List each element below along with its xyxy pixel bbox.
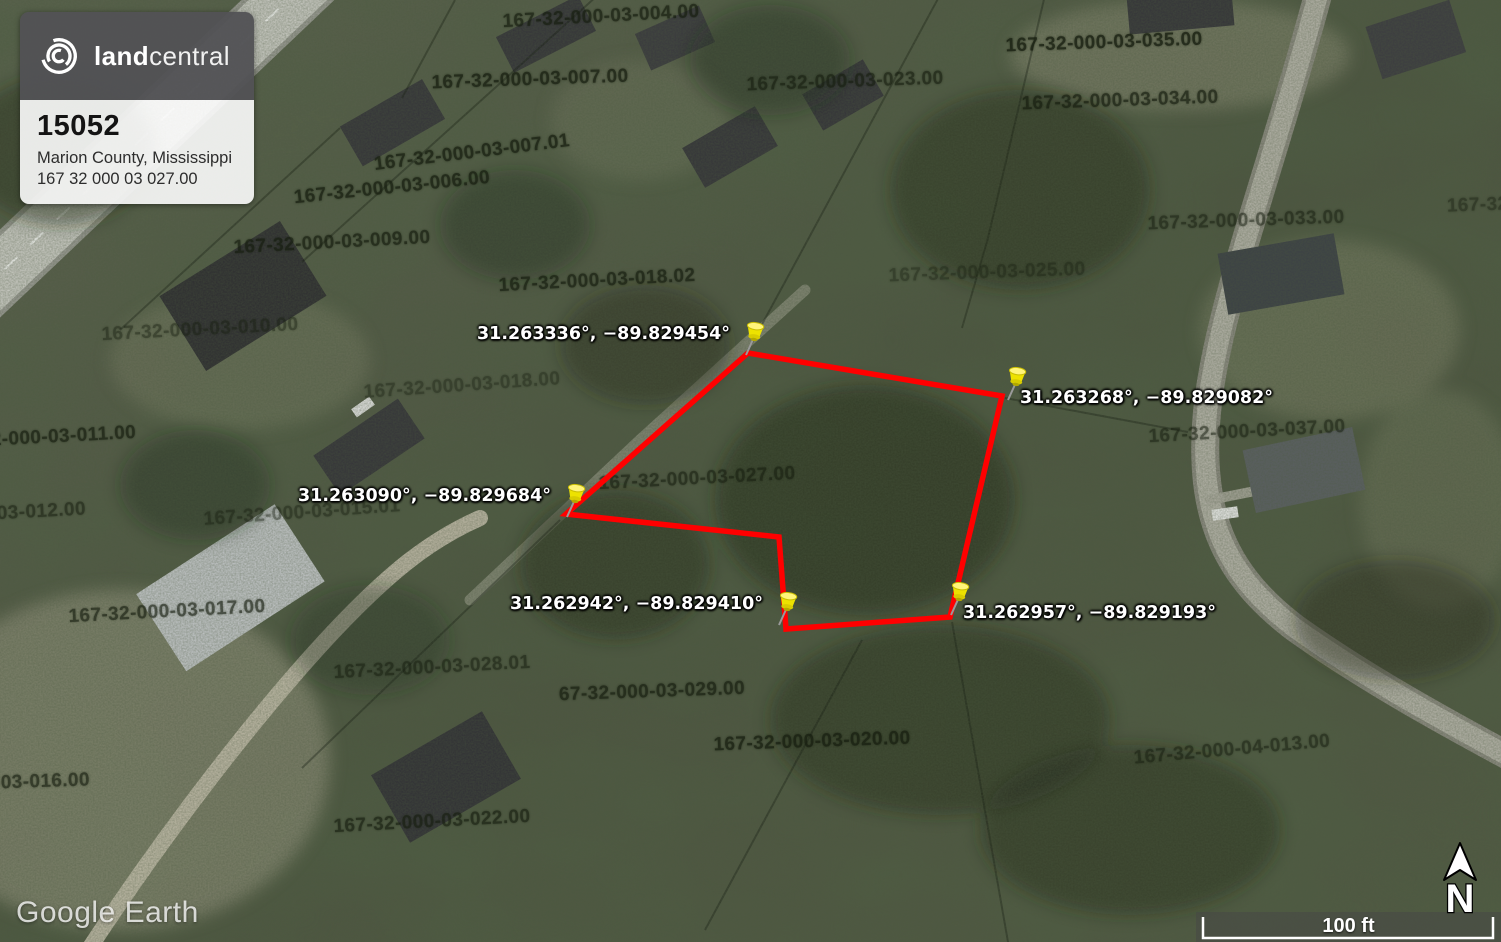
brand-wordmark: landcentral xyxy=(94,41,230,72)
north-indicator: N xyxy=(1434,840,1486,918)
google-earth-watermark: Google Earth xyxy=(16,896,199,930)
north-label: N xyxy=(1446,877,1475,918)
brand-body: 15052 Marion County, Mississippi 167 32 … xyxy=(20,100,254,204)
listing-parcel-number: 167 32 000 03 027.00 xyxy=(37,169,237,190)
pushpin-icon xyxy=(771,590,803,629)
brand-word-land: land xyxy=(94,41,149,71)
brand-header: landcentral xyxy=(20,12,254,100)
map-canvas[interactable]: 167-32-000-03-004.00 167-32-000-03-007.0… xyxy=(0,0,1501,942)
landcentral-logo-icon xyxy=(36,33,82,79)
pin-coordinates-label: 31.263268°, −89.829082° xyxy=(1020,388,1273,408)
brand-word-central: central xyxy=(149,41,230,71)
north-arrow-icon xyxy=(1444,843,1476,880)
pushpin-icon xyxy=(738,320,770,359)
listing-info-card: landcentral 15052 Marion County, Mississ… xyxy=(20,12,254,204)
pin-coordinates-label: 31.263336°, −89.829454° xyxy=(477,324,730,344)
pin-coordinates-label: 31.262957°, −89.829193° xyxy=(963,603,1216,623)
listing-id: 15052 xyxy=(37,110,237,143)
scale-bar-label: 100 ft xyxy=(1196,915,1501,938)
pin-coordinates-label: 31.263090°, −89.829684° xyxy=(298,486,551,506)
listing-location: Marion County, Mississippi xyxy=(37,148,237,169)
pushpin-icon xyxy=(559,482,591,521)
pin-coordinates-label: 31.262942°, −89.829410° xyxy=(510,594,763,614)
